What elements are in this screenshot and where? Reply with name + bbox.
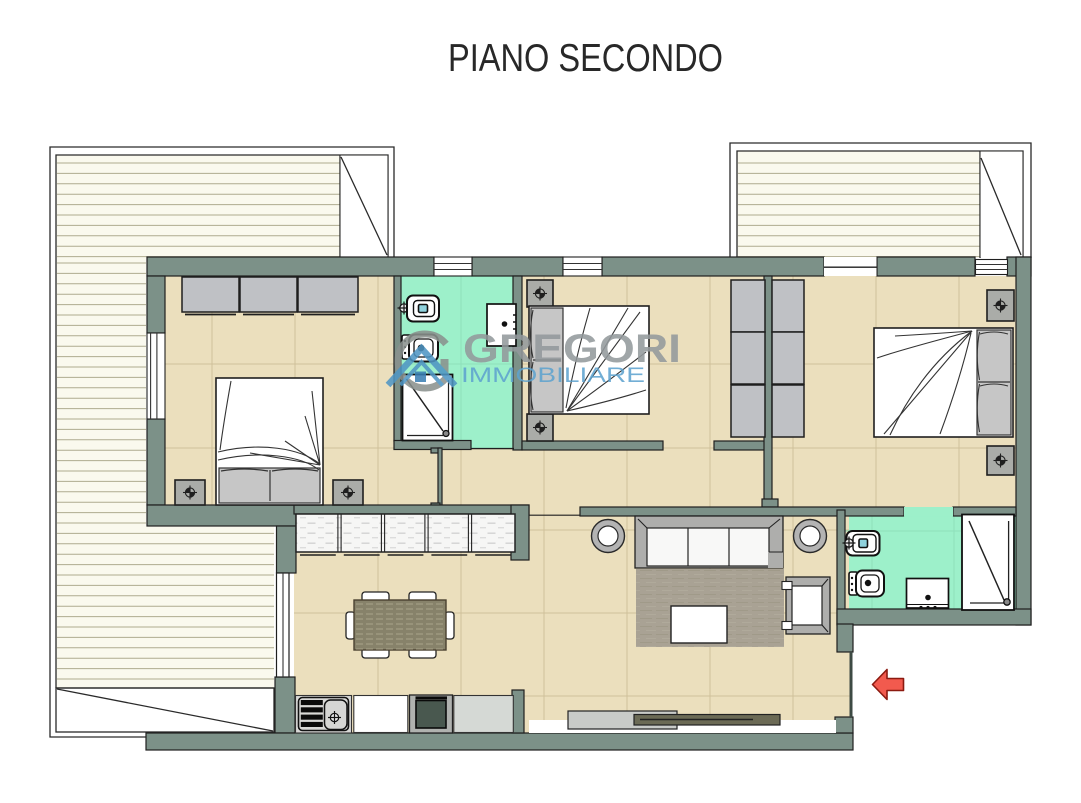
svg-text:IMMOBILIARE: IMMOBILIARE: [461, 364, 645, 387]
svg-text:PIANO SECONDO: PIANO SECONDO: [448, 37, 723, 80]
